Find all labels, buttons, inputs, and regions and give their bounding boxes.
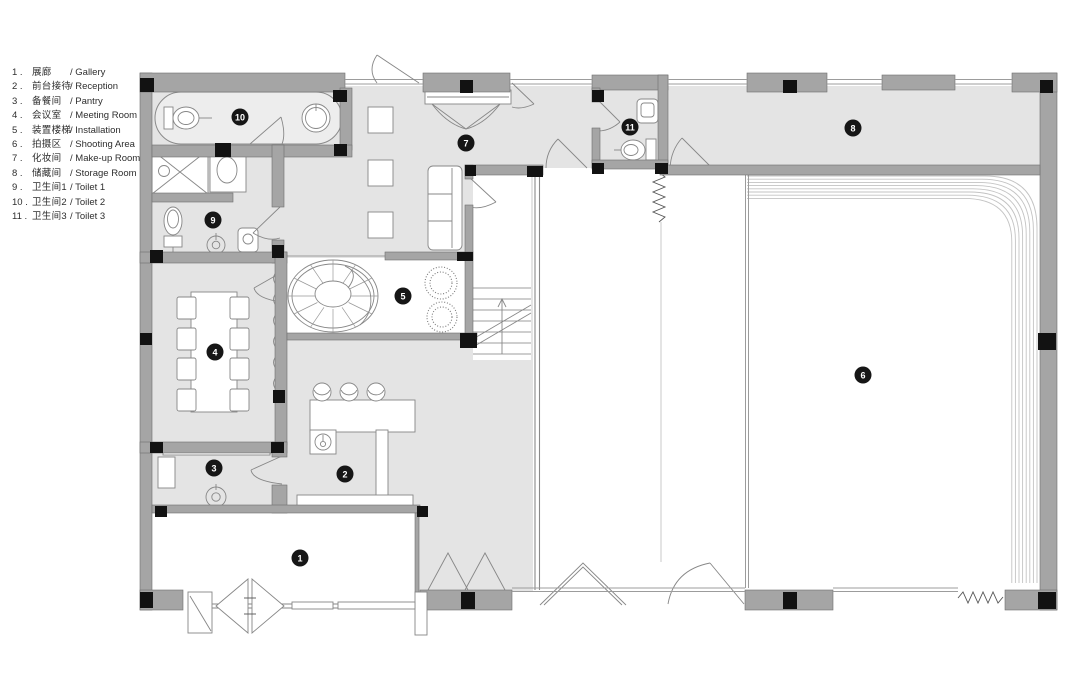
spiral-inner-loop — [315, 281, 351, 307]
legend-zh: 装置楼梯 — [32, 124, 70, 138]
floor-plan: 1 2 3 4 5 6 7 8 9 10 11 — [0, 0, 1080, 687]
legend-en: / Reception — [70, 80, 118, 94]
legend-en: / Toilet 2 — [70, 196, 105, 210]
legend-num: 1 . — [12, 66, 32, 80]
glass-panel — [338, 602, 415, 609]
wall-interior-thin — [415, 513, 419, 592]
room-badge-shooting: 6 — [855, 367, 872, 384]
legend-num: 7 . — [12, 152, 32, 166]
legend-num: 5 . — [12, 124, 32, 138]
wall-interior — [660, 165, 1040, 175]
wall-top — [140, 73, 345, 92]
room-badge-storage: 8 — [845, 120, 862, 137]
room-badge-reception: 2 — [337, 466, 354, 483]
makeup-station-icon — [368, 107, 393, 133]
folding-door-icon — [540, 563, 626, 605]
legend-zh: 卫生间1 — [32, 181, 70, 195]
svg-text:5: 5 — [400, 292, 405, 302]
floor-north-east-block — [533, 86, 1040, 168]
door-leaf — [710, 563, 744, 604]
room-badge-toilet3: 11 — [622, 119, 639, 136]
wall-interior — [287, 333, 477, 340]
legend-en: / Toilet 1 — [70, 181, 105, 195]
toilet-tank-icon — [646, 139, 656, 160]
sofa-icon — [428, 166, 462, 250]
folding-door-icon — [544, 567, 622, 605]
legend-item: 8 .储藏间/ Storage Room — [12, 167, 140, 181]
wall-interior — [152, 505, 420, 513]
wall-top — [592, 75, 668, 90]
wall-interior — [658, 75, 668, 168]
legend-zh: 会议室 — [32, 109, 70, 123]
room-badge-toilet1: 9 — [205, 212, 222, 229]
legend-item: 11 .卫生间3/ Toilet 3 — [12, 210, 140, 224]
zigzag-connector-icon — [958, 592, 1003, 603]
glass-panel — [292, 602, 333, 609]
legend-num: 6 . — [12, 138, 32, 152]
chair-icon — [177, 297, 196, 319]
legend-zh: 备餐间 — [32, 95, 70, 109]
legend-zh: 展廊 — [32, 66, 70, 80]
legend-item: 2 .前台接待/ Reception — [12, 80, 140, 94]
legend-en: / Meeting Room — [70, 109, 137, 123]
legend-num: 3 . — [12, 95, 32, 109]
spiral-staircase — [288, 260, 378, 332]
partition-lines — [535, 168, 749, 590]
legend-item: 9 .卫生间1/ Toilet 1 — [12, 181, 140, 195]
legend-zh: 拍摄区 — [32, 138, 70, 152]
makeup-station-icon — [368, 212, 393, 238]
legend-item: 10 .卫生间2/ Toilet 2 — [12, 196, 140, 210]
svg-text:6: 6 — [860, 371, 865, 381]
legend-item: 5 .装置楼梯/ Installation — [12, 124, 140, 138]
room-badge-pantry: 3 — [206, 460, 223, 477]
stools — [313, 383, 385, 401]
door-swing-arc — [372, 55, 377, 83]
room-badge-toilet2: 10 — [232, 109, 249, 126]
chair-icon — [230, 389, 249, 411]
room-badge-meeting: 4 — [207, 344, 224, 361]
door-swing-arc — [668, 563, 710, 604]
toilet2-room — [155, 92, 342, 144]
wall-interior — [465, 252, 473, 340]
door-leaf — [377, 55, 419, 83]
chair-icon — [230, 328, 249, 350]
legend-num: 11 . — [12, 210, 32, 224]
legend-en: / Pantry — [70, 95, 103, 109]
wall-top — [882, 75, 955, 90]
legend-en: / Toilet 3 — [70, 210, 105, 224]
legend-zh: 储藏间 — [32, 167, 70, 181]
toilet-bowl-icon — [621, 140, 645, 160]
makeup-station-icon — [368, 160, 393, 186]
room-badge-installation: 5 — [395, 288, 412, 305]
chair-icon — [177, 328, 196, 350]
legend-num: 9 . — [12, 181, 32, 195]
chair-icon — [230, 358, 249, 380]
reception-counter — [310, 400, 415, 432]
toilet-bowl-icon — [164, 207, 182, 235]
svg-text:7: 7 — [463, 139, 468, 149]
zigzag-connector-icon — [653, 172, 665, 222]
chair-icon — [177, 389, 196, 411]
svg-text:8: 8 — [850, 124, 855, 134]
chair-icon — [230, 297, 249, 319]
legend-zh: 卫生间3 — [32, 210, 70, 224]
legend-en: / Storage Room — [70, 167, 137, 181]
legend-en: / Make-up Room — [70, 152, 140, 166]
svg-text:2: 2 — [342, 470, 347, 480]
svg-text:3: 3 — [211, 464, 216, 474]
wall-interior — [152, 145, 352, 157]
legend-en: / Shooting Area — [70, 138, 135, 152]
legend-num: 4 . — [12, 109, 32, 123]
room-badge-makeup: 7 — [458, 135, 475, 152]
legend-en: / Installation — [70, 124, 121, 138]
toilet-bowl-icon — [173, 107, 199, 129]
chair-icon — [177, 358, 196, 380]
svg-text:4: 4 — [212, 348, 217, 358]
svg-text:9: 9 — [210, 216, 215, 226]
wall-interior — [465, 205, 473, 252]
legend-zh: 前台接待 — [32, 80, 70, 94]
legend-item: 7 .化妆间/ Make-up Room — [12, 152, 140, 166]
legend-item: 1 .展廊/ Gallery — [12, 66, 140, 80]
legend-en: / Gallery — [70, 66, 105, 80]
legend-zh: 化妆间 — [32, 152, 70, 166]
svg-text:10: 10 — [235, 113, 245, 123]
legend: 1 .展廊/ Gallery 2 .前台接待/ Reception 3 .备餐间… — [12, 66, 140, 224]
bench — [297, 495, 413, 506]
legend-num: 2 . — [12, 80, 32, 94]
toilet-tank-icon — [164, 107, 173, 129]
legend-num: 10 . — [12, 196, 32, 210]
svg-text:11: 11 — [625, 123, 635, 133]
wall-interior — [152, 193, 233, 202]
legend-num: 8 . — [12, 167, 32, 181]
legend-item: 6 .拍摄区/ Shooting Area — [12, 138, 140, 152]
cyclorama-curves — [747, 176, 1037, 583]
entrance-jamb — [415, 592, 427, 635]
wall-interior — [272, 145, 284, 207]
legend-item: 3 .备餐间/ Pantry — [12, 95, 140, 109]
floor-gallery — [152, 513, 415, 592]
legend-zh: 卫生间2 — [32, 196, 70, 210]
svg-text:1: 1 — [297, 554, 302, 564]
cabinet-icon — [158, 457, 175, 488]
room-badge-gallery: 1 — [292, 550, 309, 567]
toilet-tank-icon — [164, 236, 182, 247]
wall-interior — [275, 252, 287, 445]
legend-item: 4 .会议室/ Meeting Room — [12, 109, 140, 123]
